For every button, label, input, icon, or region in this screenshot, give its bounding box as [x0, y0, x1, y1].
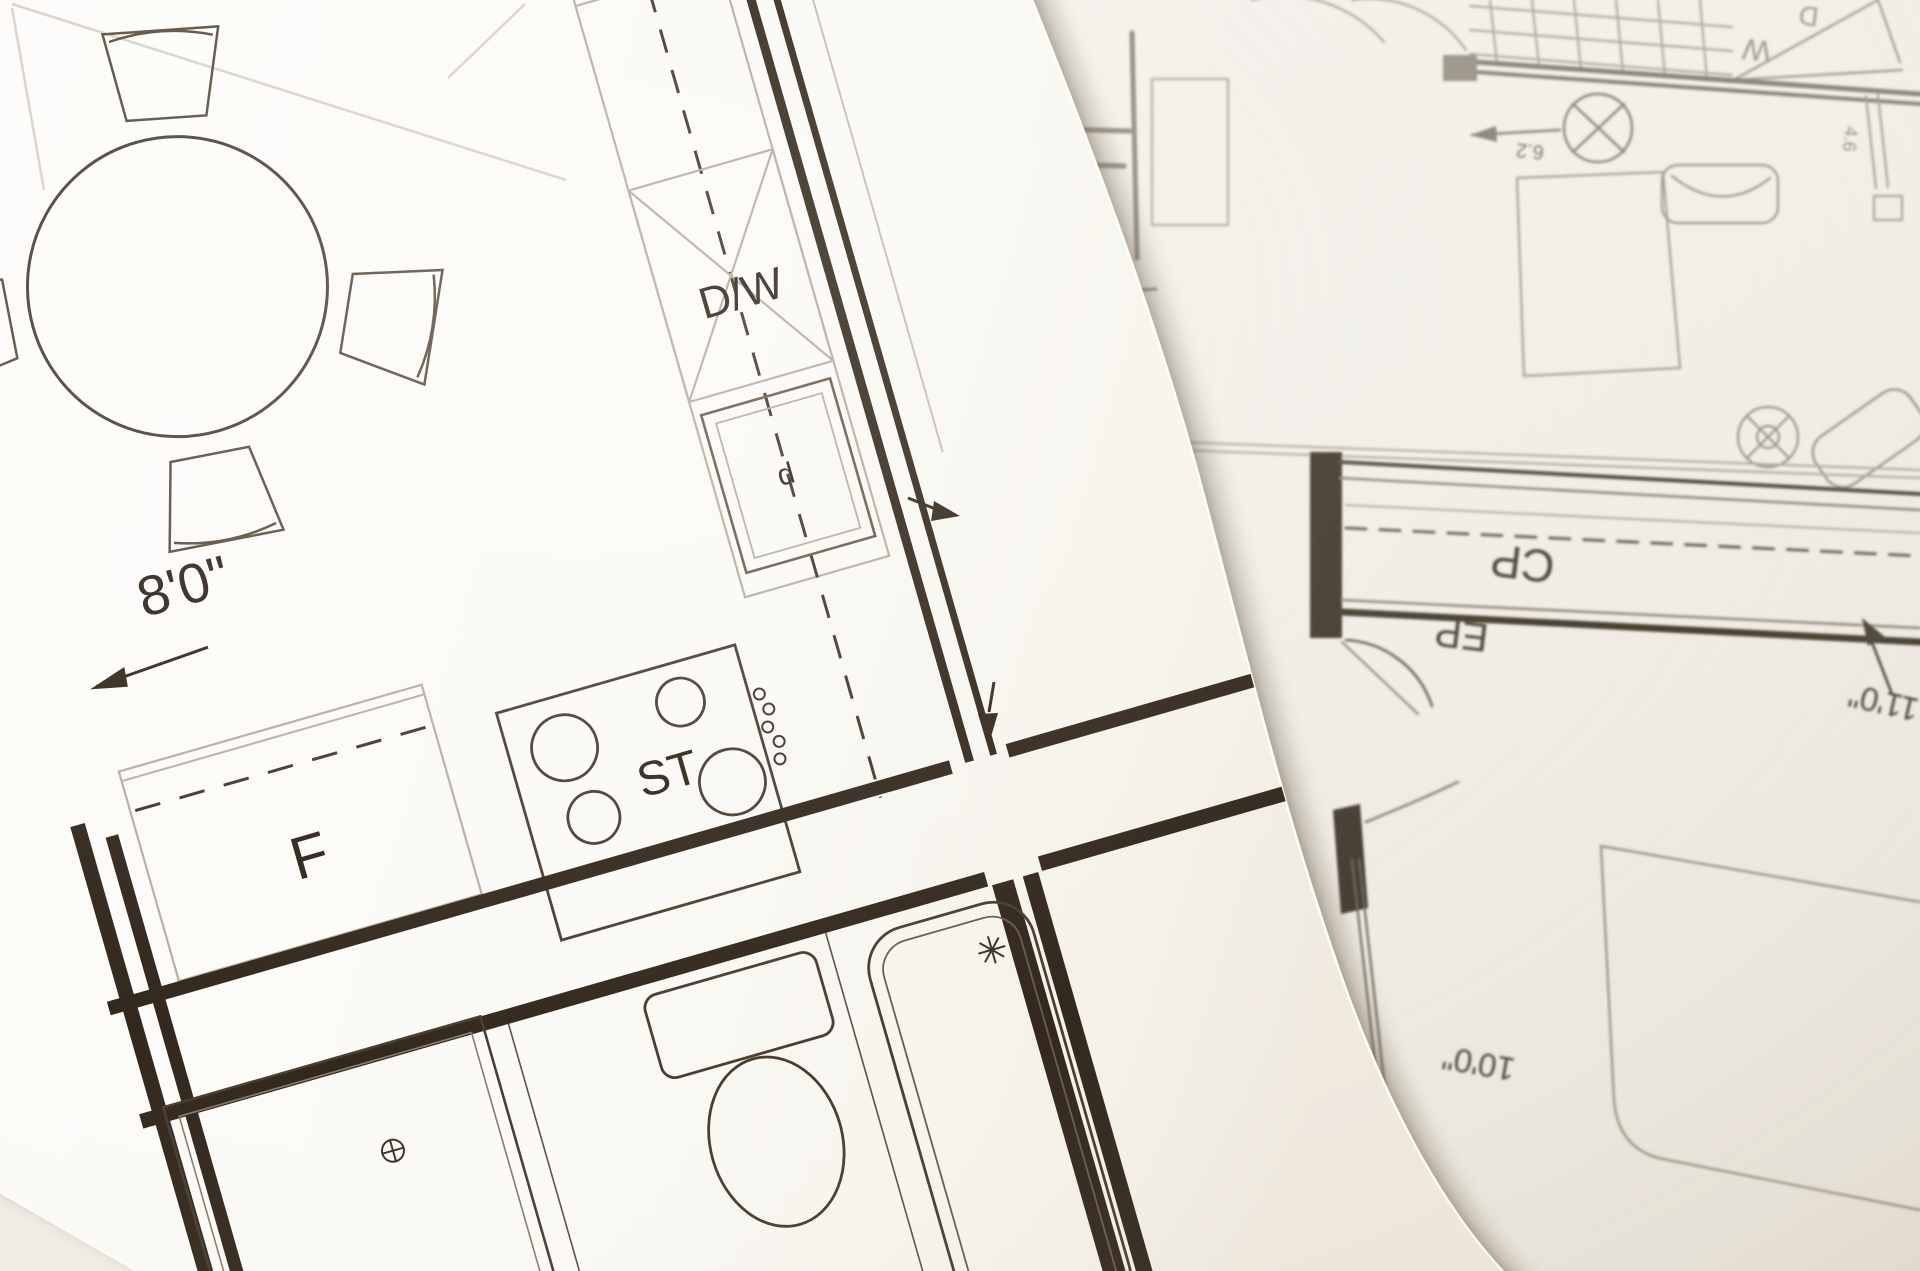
- photo-vignette: [0, 0, 1920, 1271]
- blueprint-photo: W D 4.6 6.2: [0, 0, 1920, 1271]
- blueprint-photo-canvas: W D 4.6 6.2: [0, 0, 1920, 1271]
